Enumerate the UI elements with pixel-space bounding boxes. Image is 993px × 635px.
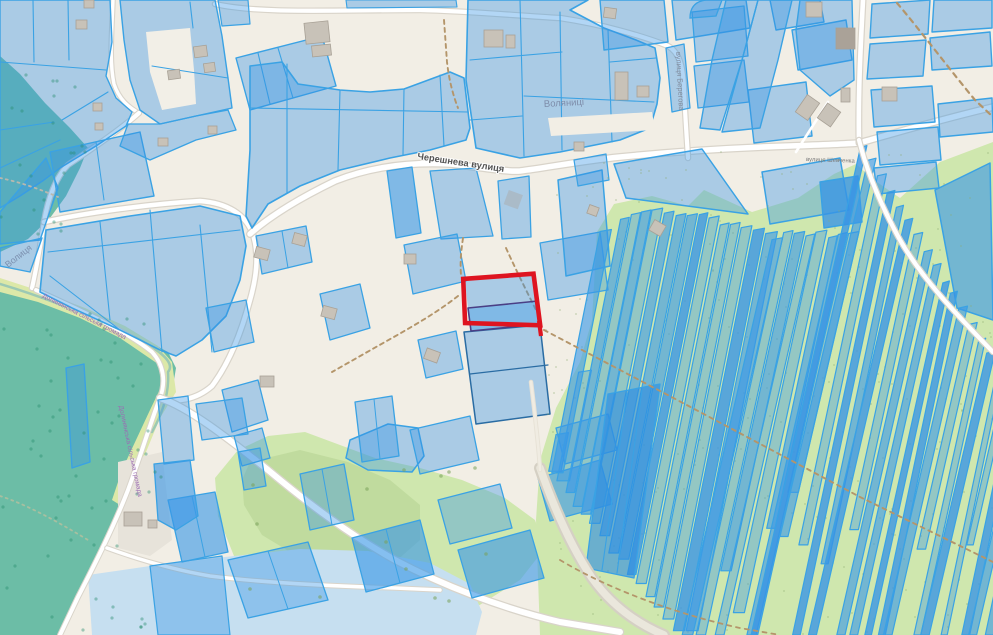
svg-text:Воляниці: Воляниці — [544, 97, 585, 110]
